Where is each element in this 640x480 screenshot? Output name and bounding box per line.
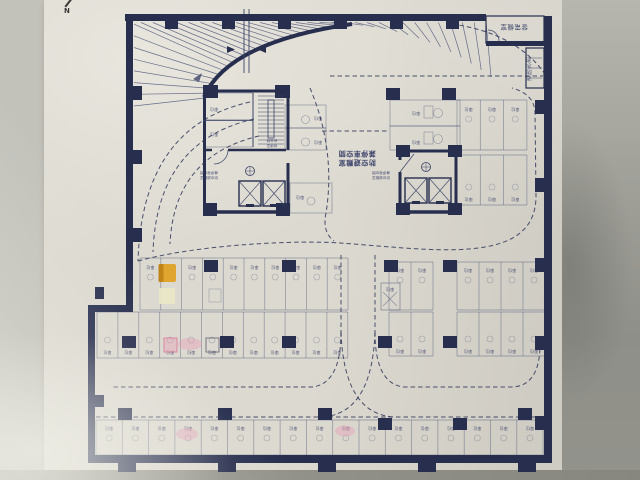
water-tank-room-label: 消防水池	[528, 51, 542, 87]
stall-label: 車位	[263, 425, 271, 432]
stall-label: 車位	[396, 348, 404, 355]
stall-label: 車位	[412, 139, 420, 146]
stall-label: 車位	[236, 425, 244, 432]
parking-row: 車位車位車位車位	[457, 312, 545, 356]
stall-label: 車位	[314, 115, 322, 122]
stall-label: 車位	[229, 349, 237, 356]
stall-label: 車位	[312, 349, 320, 356]
stall-label: 車位	[464, 106, 472, 113]
stall-label: 車位	[188, 264, 196, 271]
stall-label: 車位	[131, 425, 139, 432]
floor-plan-drawing: 車位車位車位車位車位車位車位車位車位車位車位車位車位車位車位車位車位車位車位車位…	[0, 0, 640, 480]
stall-label: 車位	[103, 349, 111, 356]
stall-label: 車位	[210, 425, 218, 432]
stall-label: 車位	[418, 267, 426, 274]
stall-label: 車位	[464, 267, 472, 274]
elevator-right-1	[405, 178, 427, 204]
parking-row: 車位車位車位車位車位車位車位車位車位車位車位車位	[97, 312, 348, 358]
stall-label: 車位	[394, 425, 402, 432]
stall-label: 車位	[333, 349, 341, 356]
stall-label: 車位	[270, 349, 278, 356]
marker-pink-scribble-1	[178, 338, 202, 350]
stall-label: 車位	[499, 425, 507, 432]
parking-row: 車位車位車位	[457, 100, 527, 150]
marker-pale-yellow	[159, 288, 175, 304]
stall-label: 車位	[158, 425, 166, 432]
generator-room-label: 發電機室	[490, 23, 538, 31]
stairs	[258, 96, 284, 144]
stall-label: 車位	[473, 425, 481, 432]
floor-plan-photo: 車位車位車位車位車位車位車位車位車位車位車位車位車位車位車位車位車位車位車位車位…	[0, 0, 640, 480]
evacuation-note-left: 防空避難室 兼停車空間	[198, 170, 220, 179]
stall-label: 車位	[229, 264, 237, 271]
stall-label: 車位	[124, 349, 132, 356]
stall-label: 車位	[464, 348, 472, 355]
core-left	[203, 85, 290, 216]
stall-label: 車位	[486, 348, 494, 355]
parking-row: 車位車位車位車位車位車位車位車位車位車位車位車位車位車位車位車位車位	[96, 420, 543, 455]
north-arrow-icon: N	[56, 0, 82, 20]
stall-label: 車位	[187, 349, 195, 356]
north-label: N	[64, 7, 70, 15]
stall-label: 車位	[511, 106, 519, 113]
stall-label: 車位	[271, 264, 279, 271]
marker-pink-square	[164, 338, 177, 352]
stall-label: 車位	[526, 425, 534, 432]
stall-label: 車位	[511, 196, 519, 203]
stall-label: 車位	[250, 349, 258, 356]
stall-label: 車位	[508, 348, 516, 355]
elevator-left-1	[239, 181, 261, 207]
outer-walls	[88, 14, 552, 463]
stall-label: 車位	[314, 139, 322, 146]
stall-label: 車位	[421, 425, 429, 432]
stall-label: 車位	[105, 425, 113, 432]
stall-label: 車位	[368, 425, 376, 432]
stall-label: 車位	[488, 106, 496, 113]
stall-label: 車位	[486, 267, 494, 274]
stall-label: 車位	[146, 264, 154, 271]
stall-label: 車位	[315, 425, 323, 432]
marker-pink-scribble-2	[176, 428, 198, 440]
stall-label: 車位	[418, 348, 426, 355]
core-right	[396, 145, 462, 215]
parking-row: 車位車位車位	[457, 155, 527, 205]
marker-pencil-square	[206, 338, 219, 352]
stair-room-note: 排煙室 安全梯	[263, 138, 281, 147]
marker-pink-scribble-3	[335, 426, 355, 437]
stall-label: 車位	[412, 110, 420, 117]
stall-label: 車位	[250, 264, 258, 271]
parking-row: 車位車位	[389, 312, 433, 356]
stall-label: 車位	[289, 425, 297, 432]
stall-label: 車位	[210, 106, 218, 113]
stall-label: 車位	[386, 286, 394, 293]
ramp-arrow-right	[227, 46, 235, 53]
evacuation-note-right: 防空避難室 兼停車空間	[370, 170, 392, 179]
shelter-annotation-line2: 兼停車空間	[333, 149, 381, 158]
stall-label: 車位	[296, 194, 304, 201]
wall-pilasters	[95, 21, 544, 472]
elevator-right-2	[429, 178, 451, 204]
vehicle-ramp-hatching	[134, 9, 491, 106]
stall-label: 車位	[145, 349, 153, 356]
shelter-annotation-line1: 防空避難室	[333, 158, 381, 167]
stall-label: 車位	[508, 267, 516, 274]
stall-label: 車位	[488, 196, 496, 203]
stall-label: 車位	[333, 264, 341, 271]
stall-label: 車位	[291, 349, 299, 356]
stall-label: 車位	[210, 131, 218, 138]
stall-label: 車位	[464, 196, 472, 203]
stall-label: 車位	[313, 264, 321, 271]
parking-row: 車位車位車位車位	[457, 262, 545, 310]
shelter-parking-annotation: 防空避難室 兼停車空間	[333, 149, 381, 167]
